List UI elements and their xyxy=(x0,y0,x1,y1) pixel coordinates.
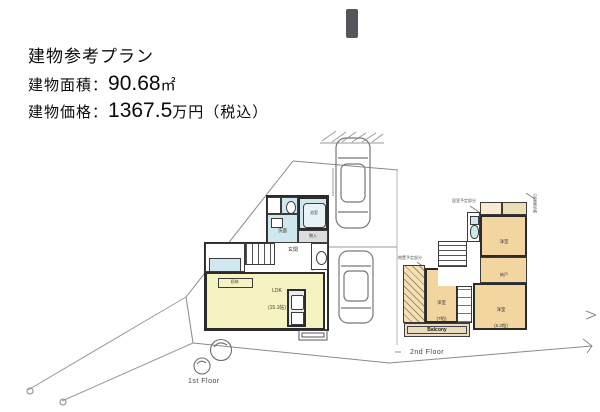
washroom-label: 洗面 xyxy=(268,228,297,233)
closet: 物入 xyxy=(298,230,328,243)
washstand-icon xyxy=(271,218,283,228)
storage-roof-area xyxy=(403,265,425,323)
bedroom-top-name: 洋室 xyxy=(490,239,518,244)
closet-2f-b xyxy=(502,202,527,215)
storage-room-2f: 納戸 (3帖) xyxy=(480,257,527,283)
closet-corridor xyxy=(457,286,472,323)
kitchen-sink-icon xyxy=(291,295,304,310)
bedroom-top: 洋室 (6.7帖) xyxy=(480,215,527,257)
entrance-hall: 玄関 xyxy=(275,243,311,272)
closet-label: 物入 xyxy=(299,234,327,239)
toilet-room-2 xyxy=(311,243,328,270)
counter-label: 収納 xyxy=(219,280,250,285)
bathroom: 浴室 xyxy=(298,197,328,230)
balcony: Balcony xyxy=(404,323,470,337)
bedroom-left-name: 洋室 xyxy=(428,300,455,305)
annotation-top: 居室予定部分 xyxy=(452,199,482,204)
hall-2f xyxy=(438,267,473,286)
washroom: 洗面 xyxy=(267,214,298,243)
stove-icon xyxy=(291,312,304,325)
toilet-room-2f xyxy=(467,212,480,242)
hedge-hatch xyxy=(320,131,384,143)
staircase-2f xyxy=(438,241,467,267)
ldk-room: LDK (15.1帖) 収納 xyxy=(205,272,325,330)
bath-label: 浴室 xyxy=(300,211,328,216)
storage-small xyxy=(267,197,281,214)
bedroom-bottom-name: 洋室 xyxy=(487,307,515,312)
toilet-icon xyxy=(286,201,296,214)
balcony-label: Balcony xyxy=(405,328,469,334)
car-icon xyxy=(336,138,370,228)
kitchen-counter xyxy=(287,289,306,327)
counter-storage: 収納 xyxy=(218,278,253,288)
toilet-room xyxy=(281,197,298,214)
plan-image: 建物参考プラン 建物面積：90.68㎡ 建物価格：1367.5万円（税込） xyxy=(0,0,600,412)
entrance-porch xyxy=(299,330,327,340)
toilet-icon xyxy=(316,251,327,265)
entrance-label: 玄関 xyxy=(277,248,309,254)
toilet-icon xyxy=(470,225,479,239)
closet-2f-a xyxy=(480,202,502,215)
bedroom-bottom: 洋室 (5.2帖) xyxy=(473,283,527,330)
bedroom-bottom-size: (5.2帖) xyxy=(487,323,515,328)
floor2-caption: 2nd Floor xyxy=(410,349,460,357)
sink-icon xyxy=(209,258,241,272)
bedroom-left-size: (7帖) xyxy=(428,316,455,321)
tank-icon xyxy=(470,216,479,225)
storage-room-name: 納戸 xyxy=(491,273,517,278)
annotation-right: 小屋裏収納 xyxy=(529,193,537,213)
staircase-1f xyxy=(245,243,275,265)
floor1-caption: 1st Floor xyxy=(188,378,234,386)
annotation-left: 物置予定部分 xyxy=(398,256,428,261)
utility-room xyxy=(205,243,245,272)
car-icon xyxy=(339,251,373,323)
